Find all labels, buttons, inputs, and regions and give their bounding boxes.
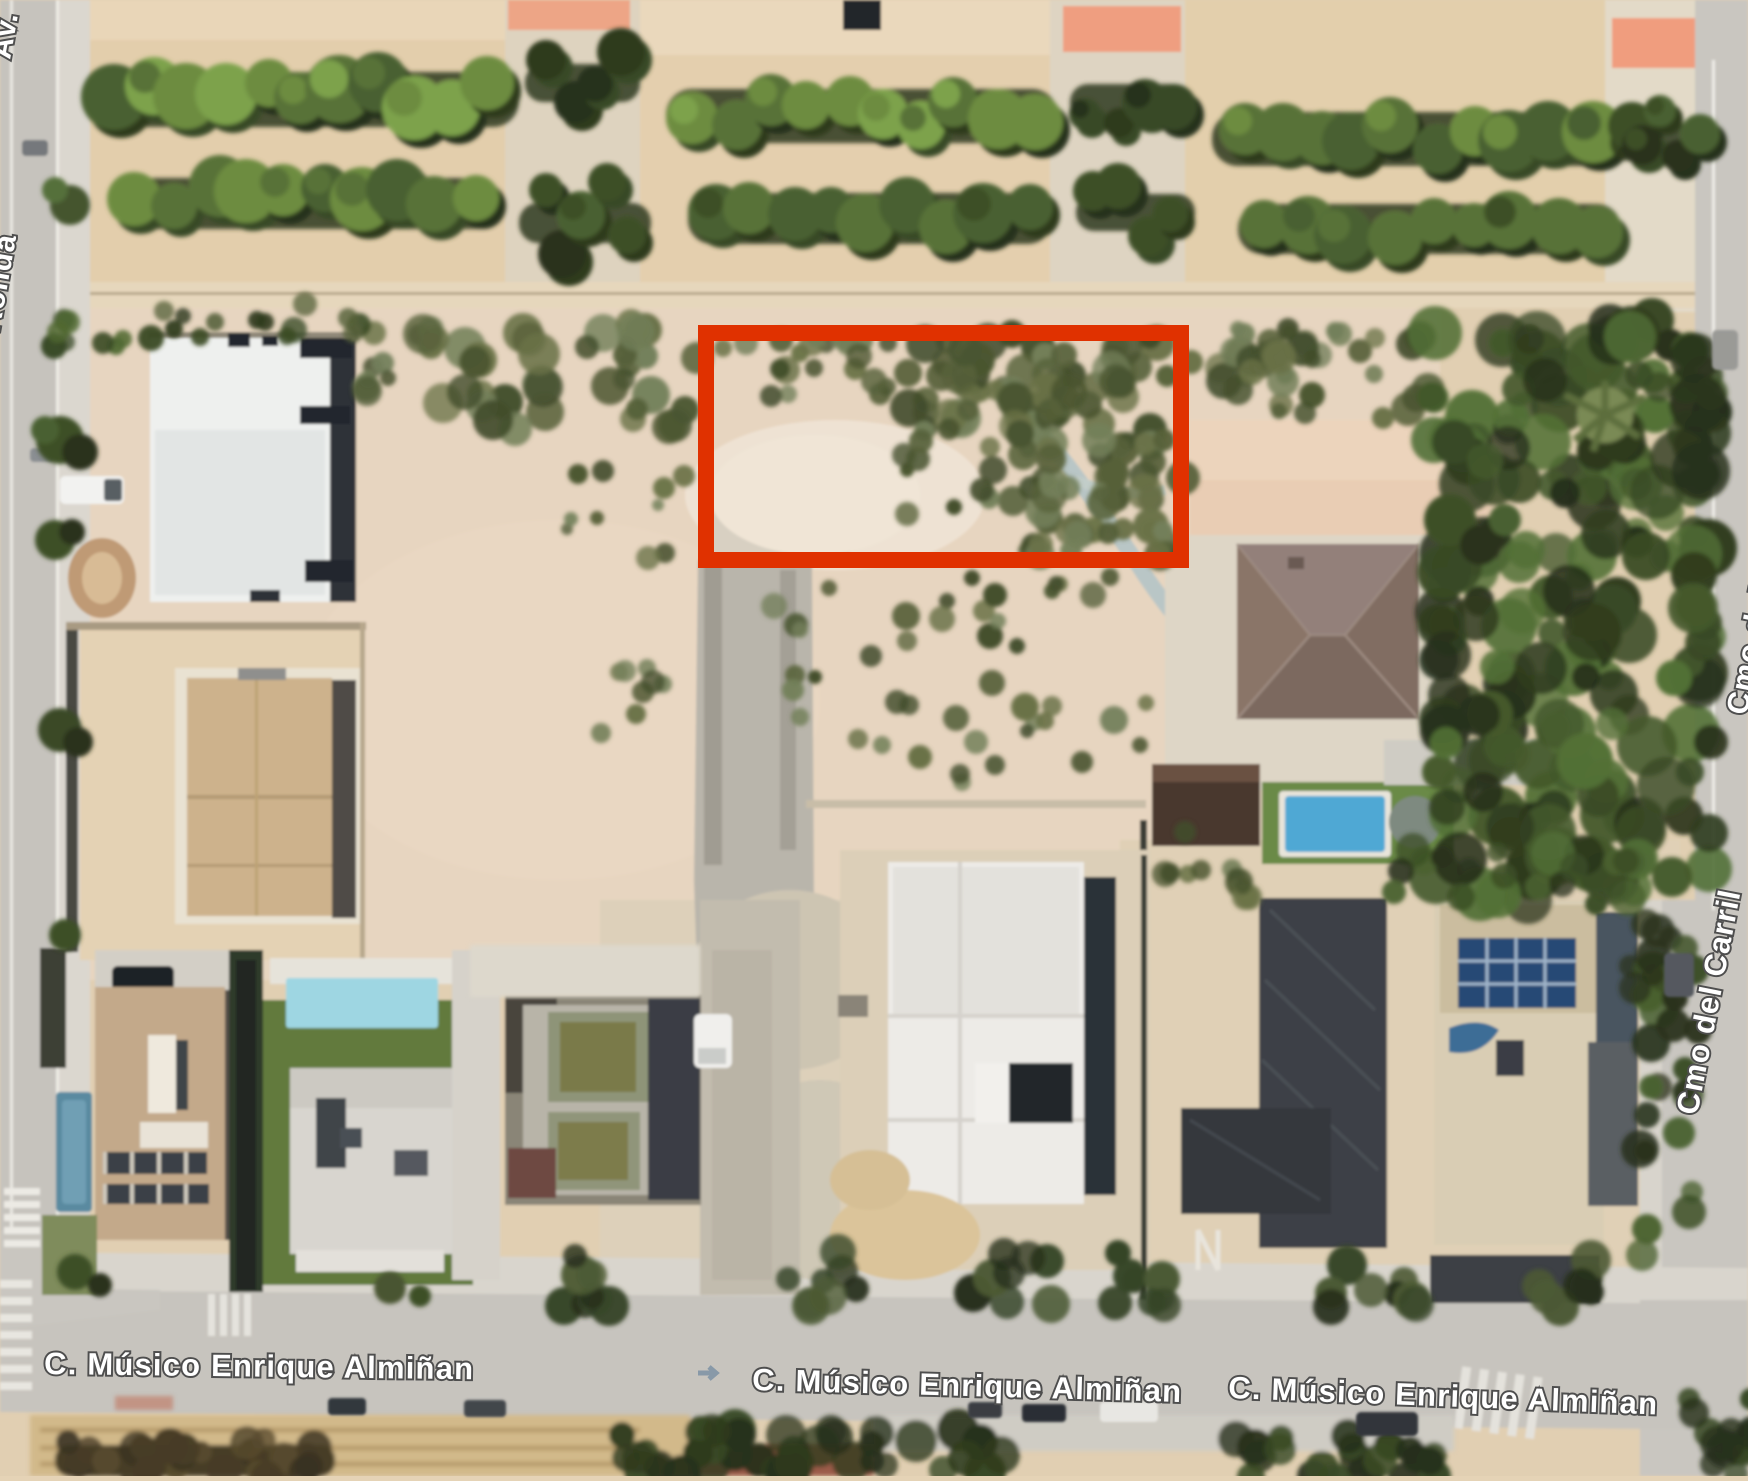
svg-text:C. Músico Enrique Almiñan: C. Músico Enrique Almiñan (44, 1346, 475, 1386)
